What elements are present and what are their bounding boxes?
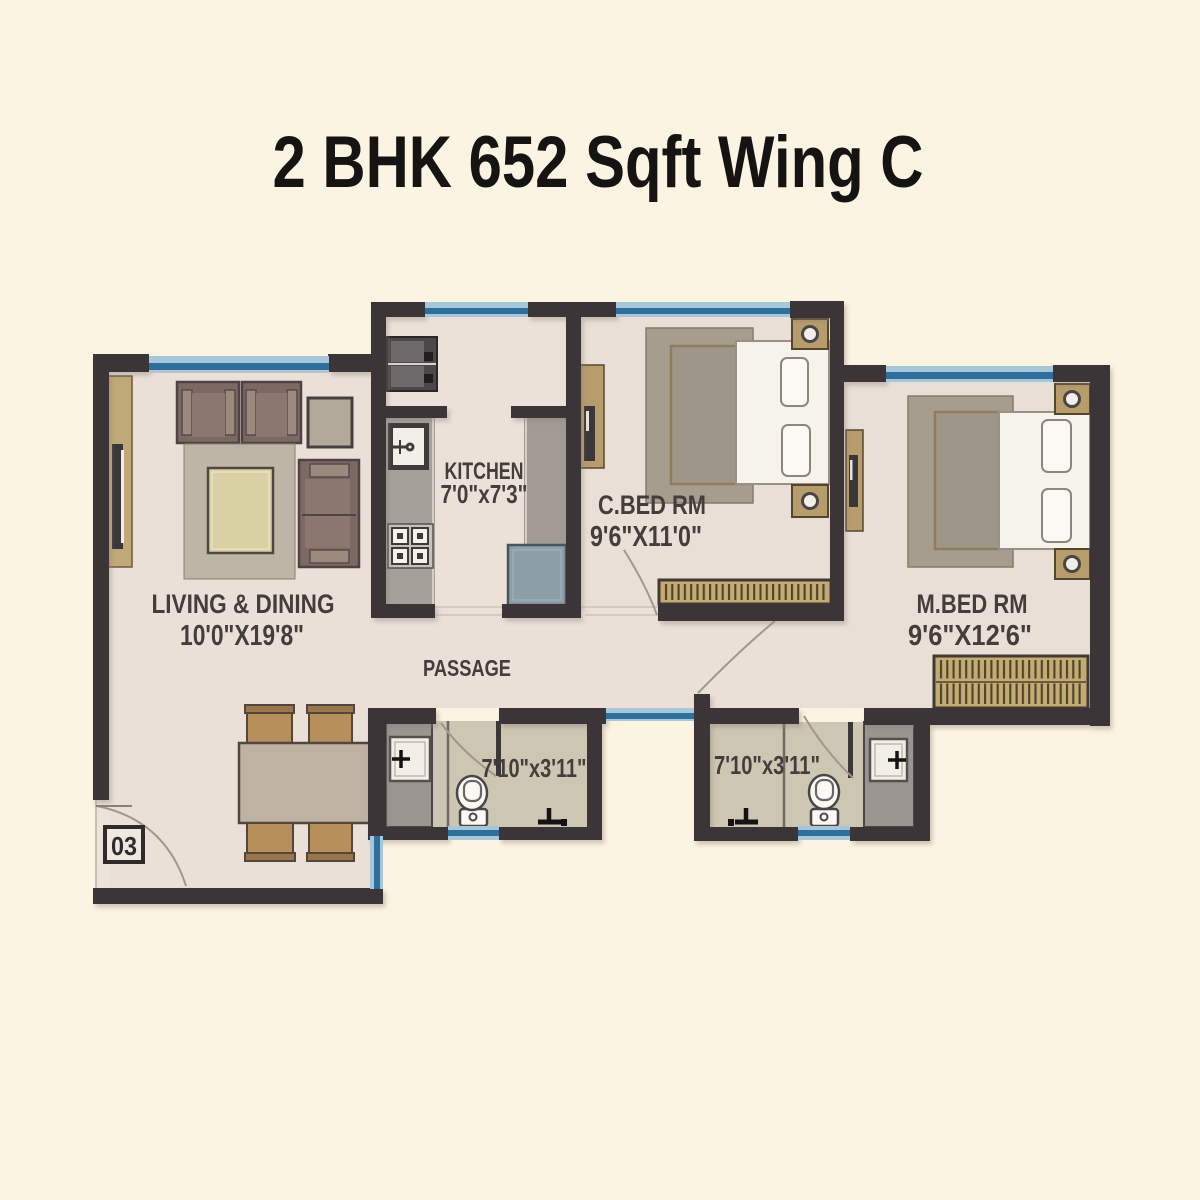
svg-text:LIVING & DINING: LIVING & DINING bbox=[152, 589, 335, 619]
svg-text:C.BED RM: C.BED RM bbox=[598, 490, 706, 520]
svg-text:7'0"x7'3": 7'0"x7'3" bbox=[441, 479, 528, 509]
svg-text:PASSAGE: PASSAGE bbox=[423, 655, 511, 681]
svg-text:2 BHK 652 Sqft Wing C: 2 BHK 652 Sqft Wing C bbox=[273, 122, 924, 203]
svg-text:9'6"X11'0": 9'6"X11'0" bbox=[590, 521, 702, 553]
svg-text:7'10"x3'11": 7'10"x3'11" bbox=[482, 753, 587, 783]
svg-text:M.BED RM: M.BED RM bbox=[917, 589, 1028, 619]
svg-text:03: 03 bbox=[111, 831, 137, 861]
svg-text:7'10"x3'11": 7'10"x3'11" bbox=[714, 750, 820, 780]
svg-text:10'0"X19'8": 10'0"X19'8" bbox=[180, 620, 304, 652]
svg-text:9'6"X12'6": 9'6"X12'6" bbox=[908, 620, 1032, 652]
